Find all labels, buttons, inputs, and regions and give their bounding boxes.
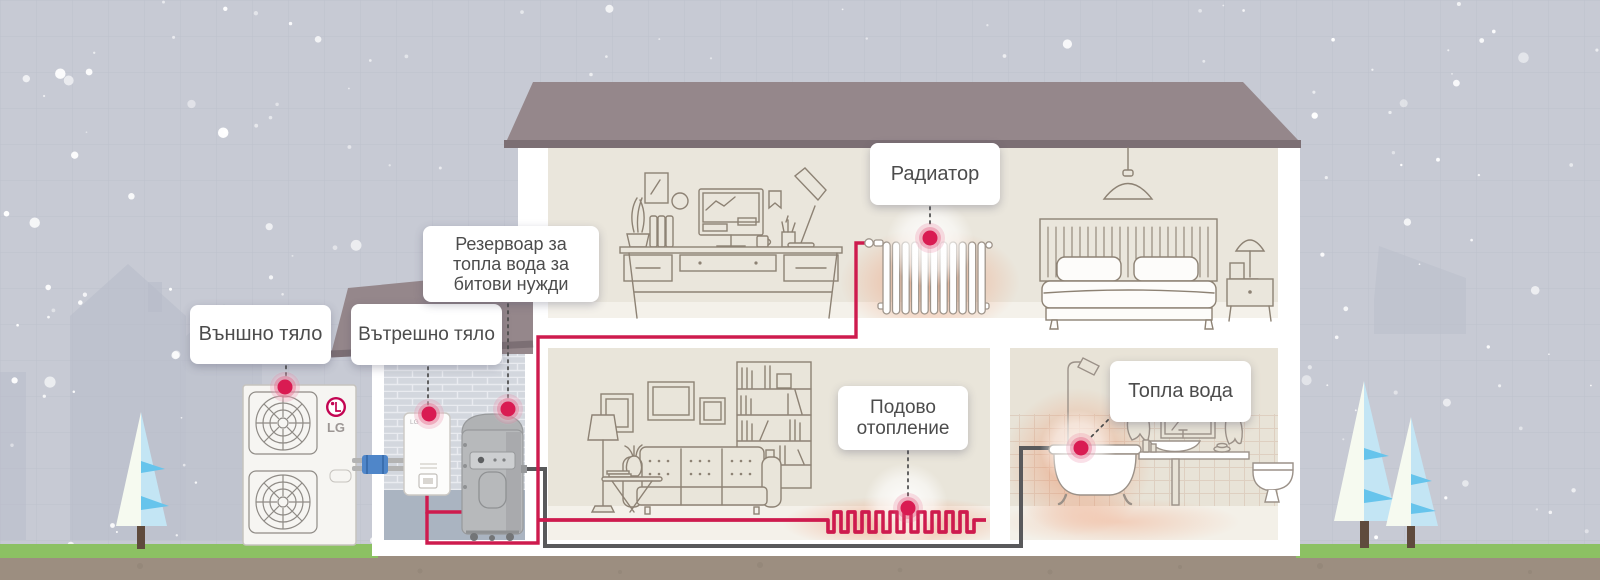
callout-outdoor-unit: Външно тяло xyxy=(190,305,331,364)
callout-dhw-tank-line2: топла вода за xyxy=(453,254,569,274)
callout-indoor-unit: Вътрешно тяло xyxy=(351,304,502,365)
hot-water-marker[interactable] xyxy=(1066,433,1096,463)
callout-indoor-unit-label: Вътрешно тяло xyxy=(358,324,495,345)
callout-dhw-tank-line1: Резервоар за xyxy=(455,234,567,254)
callout-dhw-tank-line3: битови нужди xyxy=(454,274,569,294)
roof xyxy=(507,82,1298,140)
diagram-artwork: LG LG xyxy=(0,0,1600,580)
grass-right xyxy=(1296,544,1600,558)
callout-radiator-label: Радиатор xyxy=(891,163,980,185)
soil xyxy=(0,556,1600,580)
outdoor-unit: LG xyxy=(243,385,356,545)
grass-left xyxy=(0,544,378,558)
photo-frame-icon xyxy=(1230,263,1244,279)
indoor-unit-marker[interactable] xyxy=(413,398,445,430)
callout-floor-heating-line1: Подово xyxy=(870,397,936,418)
radiator-marker[interactable] xyxy=(915,223,945,253)
outdoor-unit-marker[interactable] xyxy=(269,371,301,403)
pillow-icon xyxy=(1057,257,1121,281)
callout-radiator: Радиатор xyxy=(870,143,1000,205)
floor-heating-marker[interactable] xyxy=(893,493,923,523)
callout-floor-heating: Подово отопление xyxy=(838,386,968,450)
dhw-tank xyxy=(462,414,527,541)
books-icon xyxy=(650,216,673,247)
heating-system-diagram: LG LG xyxy=(0,0,1600,580)
callout-dhw-tank: Резервоар за топла вода за битови нужди xyxy=(423,226,599,302)
bed-icon xyxy=(1040,219,1217,329)
callout-hot-water: Топла вода xyxy=(1110,361,1251,422)
dhw-tank-marker[interactable] xyxy=(492,393,524,425)
lg-wordmark: LG xyxy=(327,420,345,435)
callout-floor-heating-line2: отопление xyxy=(857,418,950,439)
callout-outdoor-unit-label: Външно тяло xyxy=(199,323,323,345)
callout-hot-water-label: Топла вода xyxy=(1128,380,1233,402)
pillow-icon xyxy=(1134,257,1198,281)
tank-panel xyxy=(470,452,515,469)
